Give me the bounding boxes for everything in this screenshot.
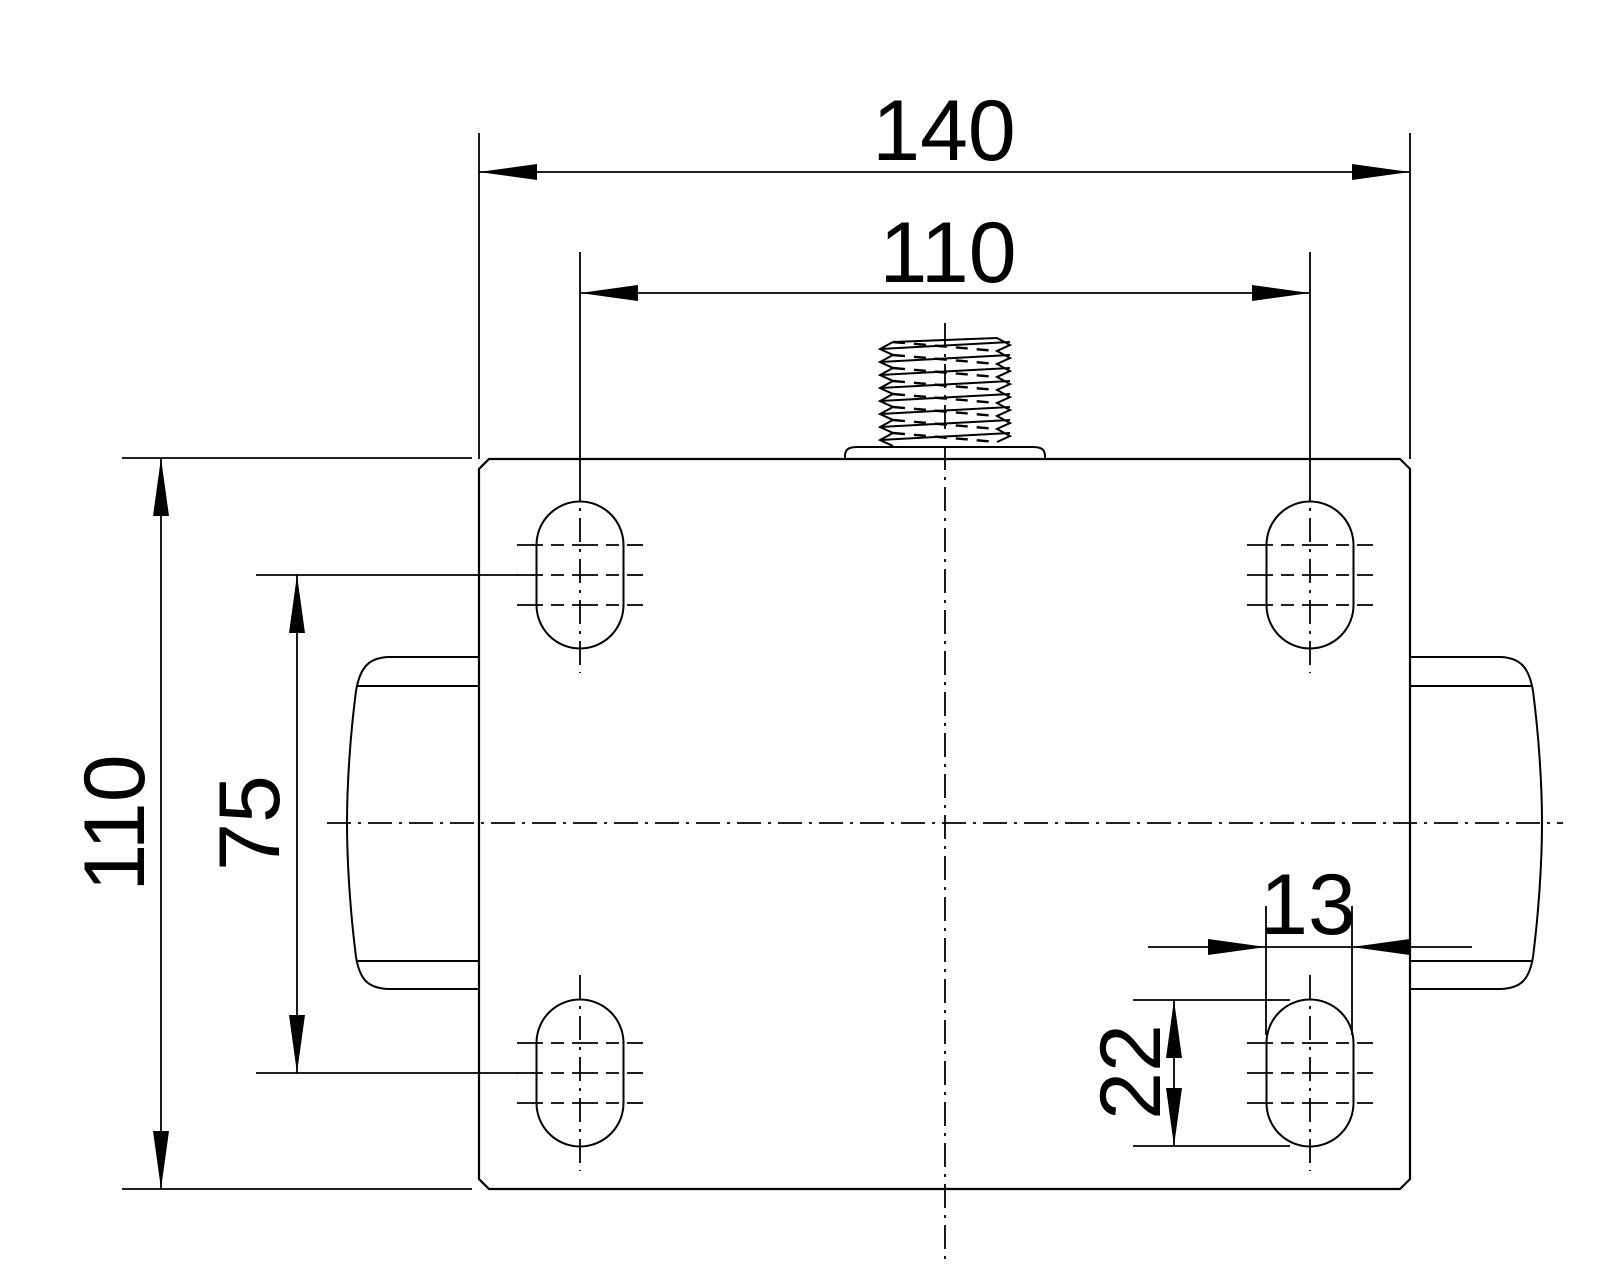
dim-bolt-spacing-vertical-label: 75 [202,775,298,871]
arrowhead [1352,164,1410,180]
dim-slot-length-label: 22 [1083,1024,1179,1120]
dim-plate-width-label: 140 [872,83,1016,179]
thread-left-zigzag [880,342,893,446]
dim-bolt-spacing-horizontal-label: 110 [879,205,1016,301]
slot-bottom-left [517,975,643,1171]
arrowhead [1208,939,1266,955]
technical-drawing-canvas: 140 110 110 75 13 [0,0,1600,1280]
dim-slot-width-label: 13 [1260,857,1356,953]
plate-center-lines [327,323,1563,1263]
dim-bolt-spacing-vertical: 75 [202,575,518,1073]
arrowhead [153,1131,169,1189]
arrowhead [1352,939,1410,955]
slot-top-left [517,477,643,673]
arrowhead [479,164,537,180]
arrowhead [153,458,169,516]
arrowhead [289,1015,305,1073]
dim-plate-depth-label: 110 [67,754,163,891]
thread-right-zigzag [997,338,1010,442]
arrowhead [289,575,305,633]
arrowhead [1252,285,1310,301]
arrowhead [580,285,638,301]
caster-top-plate-drawing: 140 110 110 75 13 [0,0,1600,1280]
slot-top-right [1247,477,1373,673]
